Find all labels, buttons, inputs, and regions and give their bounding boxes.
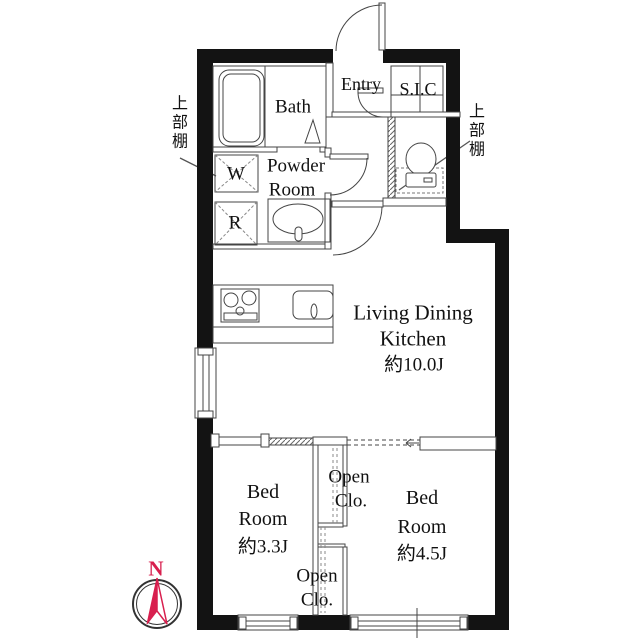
room-label-ldk-line1: Living Dining xyxy=(353,303,473,324)
kitchen-sink-icon xyxy=(293,291,333,319)
compass-rose-icon xyxy=(133,578,181,628)
bedroom-partition xyxy=(211,434,496,450)
floor-plan: Bath Powder Room Entry S.I.C W R Living … xyxy=(0,0,640,640)
room-label-bedroom-large-line1: Bed xyxy=(406,488,438,508)
fridge-label: R xyxy=(229,214,242,233)
room-label-powder-line2: Room xyxy=(269,181,315,200)
room-size-bedroom-small: 約3.3J xyxy=(238,538,288,557)
bath-folding-door xyxy=(305,120,320,143)
closet-label-lower-line1: Open xyxy=(296,567,337,586)
room-label-bedroom-small-line2: Room xyxy=(239,509,288,529)
doors xyxy=(305,3,385,255)
room-label-bedroom-small-line1: Bed xyxy=(247,482,279,502)
room-size-ldk: 約10.0J xyxy=(384,356,444,375)
ldk-door xyxy=(332,201,383,255)
powder-sink-icon xyxy=(268,199,330,242)
closet-label-upper-line1: Open xyxy=(328,468,369,487)
room-label-powder-line1: Powder xyxy=(267,157,325,176)
floor-plan-drawing xyxy=(0,0,640,640)
toilet-icon xyxy=(396,143,443,193)
powder-room-door xyxy=(330,154,368,195)
kitchen-counter xyxy=(213,285,333,343)
room-label-ldk-line2: Kitchen xyxy=(380,329,446,350)
room-label-entry: Entry xyxy=(341,75,381,93)
washer-label: W xyxy=(227,165,245,184)
closet-label-lower-line2: Clo. xyxy=(301,591,333,610)
shelf-annotation-left: 上部棚 xyxy=(169,95,185,152)
room-label-sic: S.I.C xyxy=(399,80,436,98)
window-left xyxy=(195,348,216,418)
closet-label-upper-line2: Clo. xyxy=(335,492,367,511)
shelf-annotation-right: 上部棚 xyxy=(466,103,482,160)
room-size-bedroom-large: 約4.5J xyxy=(397,545,447,564)
room-label-bedroom-large-line2: Room xyxy=(398,517,447,537)
bathtub-icon xyxy=(219,70,264,146)
compass-north-label: N xyxy=(148,559,163,580)
entry-door xyxy=(336,3,385,51)
window-bottom-small xyxy=(238,615,298,630)
room-label-bath: Bath xyxy=(275,98,311,117)
window-bottom-large xyxy=(350,608,468,638)
stove-icon xyxy=(221,289,259,322)
